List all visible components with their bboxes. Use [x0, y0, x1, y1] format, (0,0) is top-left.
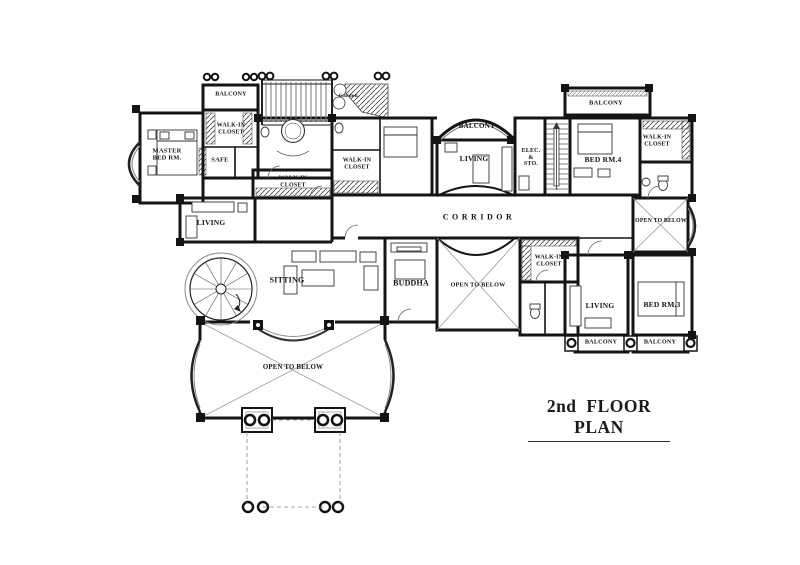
room-label-balcony-bottom-2: BALCONY [644, 340, 676, 347]
room-label-walkin-closet-master: WALK-IN CLOSET [279, 175, 307, 188]
projection-dashed-lines [247, 420, 340, 507]
roof-columns [204, 73, 390, 81]
room-label-balcony-bottom-1: BALCONY [585, 340, 617, 347]
room-label-bed-rm-4: BED RM.4 [584, 156, 621, 164]
room-label-corridor: CORRIDOR [443, 214, 515, 223]
room-label-bed-rm-3: BED RM.3 [643, 301, 680, 309]
garden-hatch [333, 84, 388, 118]
room-label-elec-sto: ELEC. & STO. [522, 148, 541, 168]
room-label-master-bed-rm: MASTER BED RM. [152, 148, 181, 163]
room-label-sitting: SITTING [270, 277, 305, 286]
porch-columns [242, 408, 345, 512]
balcony-column-blocks [253, 320, 697, 351]
room-label-safe: SAFE [211, 156, 228, 163]
plan-title: 2nd FLOOR PLAN [528, 396, 670, 442]
room-label-open-to-below-center: OPEN TO BELOW [451, 283, 506, 290]
room-label-walkin-closet-center: WALK-IN CLOSET [343, 157, 371, 170]
room-label-balcony-center: BALCONY [459, 123, 495, 131]
open-to-below-x-marks [200, 198, 688, 418]
room-label-living-left: LIVING [197, 219, 226, 227]
room-label-balcony-top-left: BALCONY [215, 92, 246, 99]
room-label-living-right: LIVING [586, 302, 615, 310]
room-label-walkin-closet-nw: WALK-IN CLOSET [217, 122, 245, 135]
straight-staircase [546, 122, 568, 190]
room-label-open-to-below-right: OPEN TO BELOW [635, 218, 687, 224]
floor-plan-canvas: BALCONY WALK-IN CLOSET MASTER BED RM. SA… [0, 0, 800, 565]
room-label-garden: Garden. [339, 93, 360, 99]
room-label-balcony-top-right: BALCONY [589, 99, 623, 106]
room-label-living-center: LIVING [460, 155, 489, 163]
spiral-staircase [185, 253, 257, 325]
room-label-walkin-closet-ne: WALK-IN CLOSET [643, 134, 671, 147]
room-label-buddha: BUDDHA [393, 280, 429, 289]
room-label-open-to-below-bottom: OPEN TO BELOW [263, 364, 323, 372]
room-label-walkin-closet-hall: WALK-IN CLOSET [535, 254, 563, 267]
